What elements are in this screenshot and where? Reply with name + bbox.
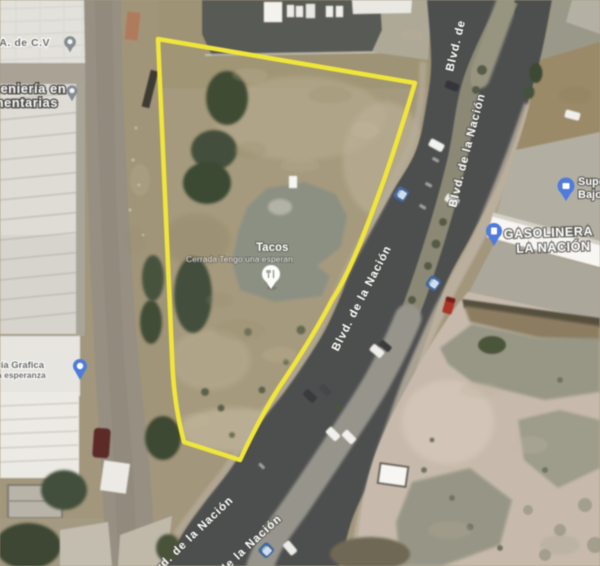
svg-text:.A. de C.V: .A. de C.V	[0, 37, 50, 49]
svg-text:geniería en: geniería en	[0, 81, 66, 96]
svg-text:Supe: Supe	[578, 176, 600, 188]
svg-text:Cerrada Tengo una esperan: Cerrada Tengo una esperan	[186, 254, 293, 264]
svg-text:a esperanza: a esperanza	[0, 370, 46, 380]
svg-text:mentarias: mentarias	[0, 95, 58, 110]
svg-text:Tacos: Tacos	[256, 242, 288, 254]
svg-text:Bajo: Bajo	[578, 189, 600, 201]
svg-text:LA NACIÓN: LA NACIÓN	[516, 238, 591, 256]
